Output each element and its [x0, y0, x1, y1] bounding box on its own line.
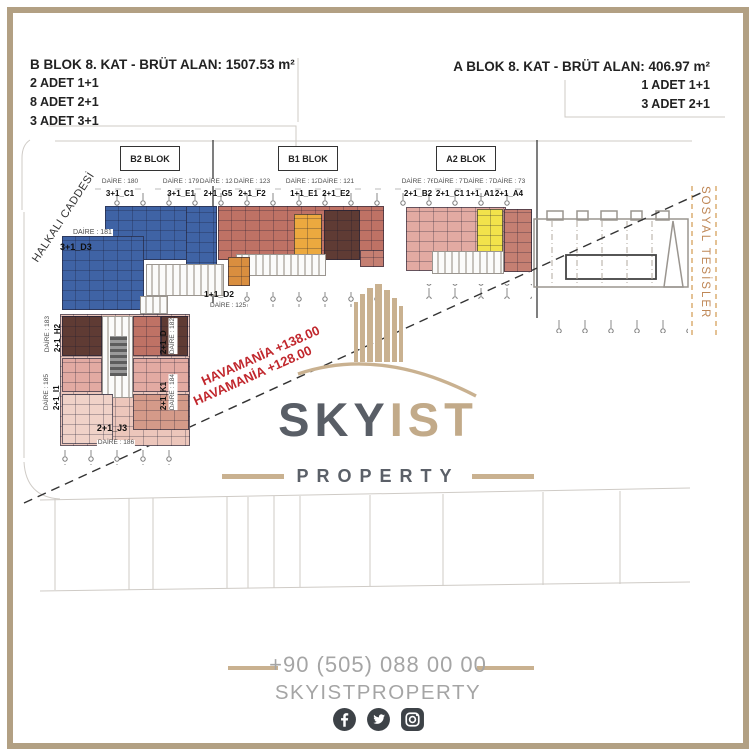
facebook-icon[interactable]	[332, 707, 357, 732]
logo-sky: SKY	[278, 393, 390, 446]
logo-arc	[298, 364, 476, 396]
twitter-icon[interactable]	[366, 707, 391, 732]
tagline-left-bar	[222, 474, 284, 479]
logo-ist: IST	[390, 393, 478, 446]
social-icons-row	[0, 707, 756, 732]
brand-handle: SKYISTPROPERTY	[0, 681, 756, 705]
logo-wordmark: SKYIST	[0, 396, 756, 443]
skyist-logo-mark	[0, 0, 756, 756]
logo-tagline: PROPERTY	[296, 466, 459, 487]
building-icon	[354, 284, 403, 362]
site-plan-page: B BLOK 8. KAT - BRÜT ALAN: 1507.53 m² 2 …	[0, 0, 756, 756]
logo-tagline-row: PROPERTY	[0, 466, 756, 487]
tagline-right-bar	[472, 474, 534, 479]
phone-number: +90 (505) 088 00 00	[0, 652, 756, 678]
instagram-icon[interactable]	[400, 707, 425, 732]
